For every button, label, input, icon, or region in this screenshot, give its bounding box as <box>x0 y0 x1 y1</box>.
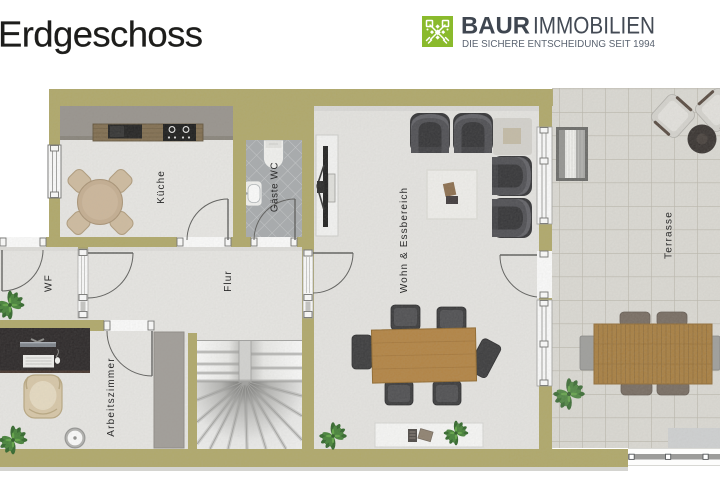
svg-text:Erdgeschoss: Erdgeschoss <box>0 14 202 55</box>
svg-text:Wohn & Essbereich: Wohn & Essbereich <box>399 187 410 293</box>
svg-text:Gäste WC: Gäste WC <box>270 162 281 212</box>
svg-text:WF: WF <box>44 274 55 292</box>
svg-text:Arbeitszimmer: Arbeitszimmer <box>106 357 117 437</box>
svg-text:Terrasse: Terrasse <box>664 211 675 259</box>
svg-text:IMMOBILIEN: IMMOBILIEN <box>533 13 655 40</box>
svg-text:Küche: Küche <box>156 170 167 204</box>
svg-text:Flur: Flur <box>223 270 234 292</box>
svg-text:BAUR: BAUR <box>461 13 530 40</box>
svg-text:DIE SICHERE ENTSCHEIDUNG SEIT: DIE SICHERE ENTSCHEIDUNG SEIT 1994 <box>462 39 655 50</box>
